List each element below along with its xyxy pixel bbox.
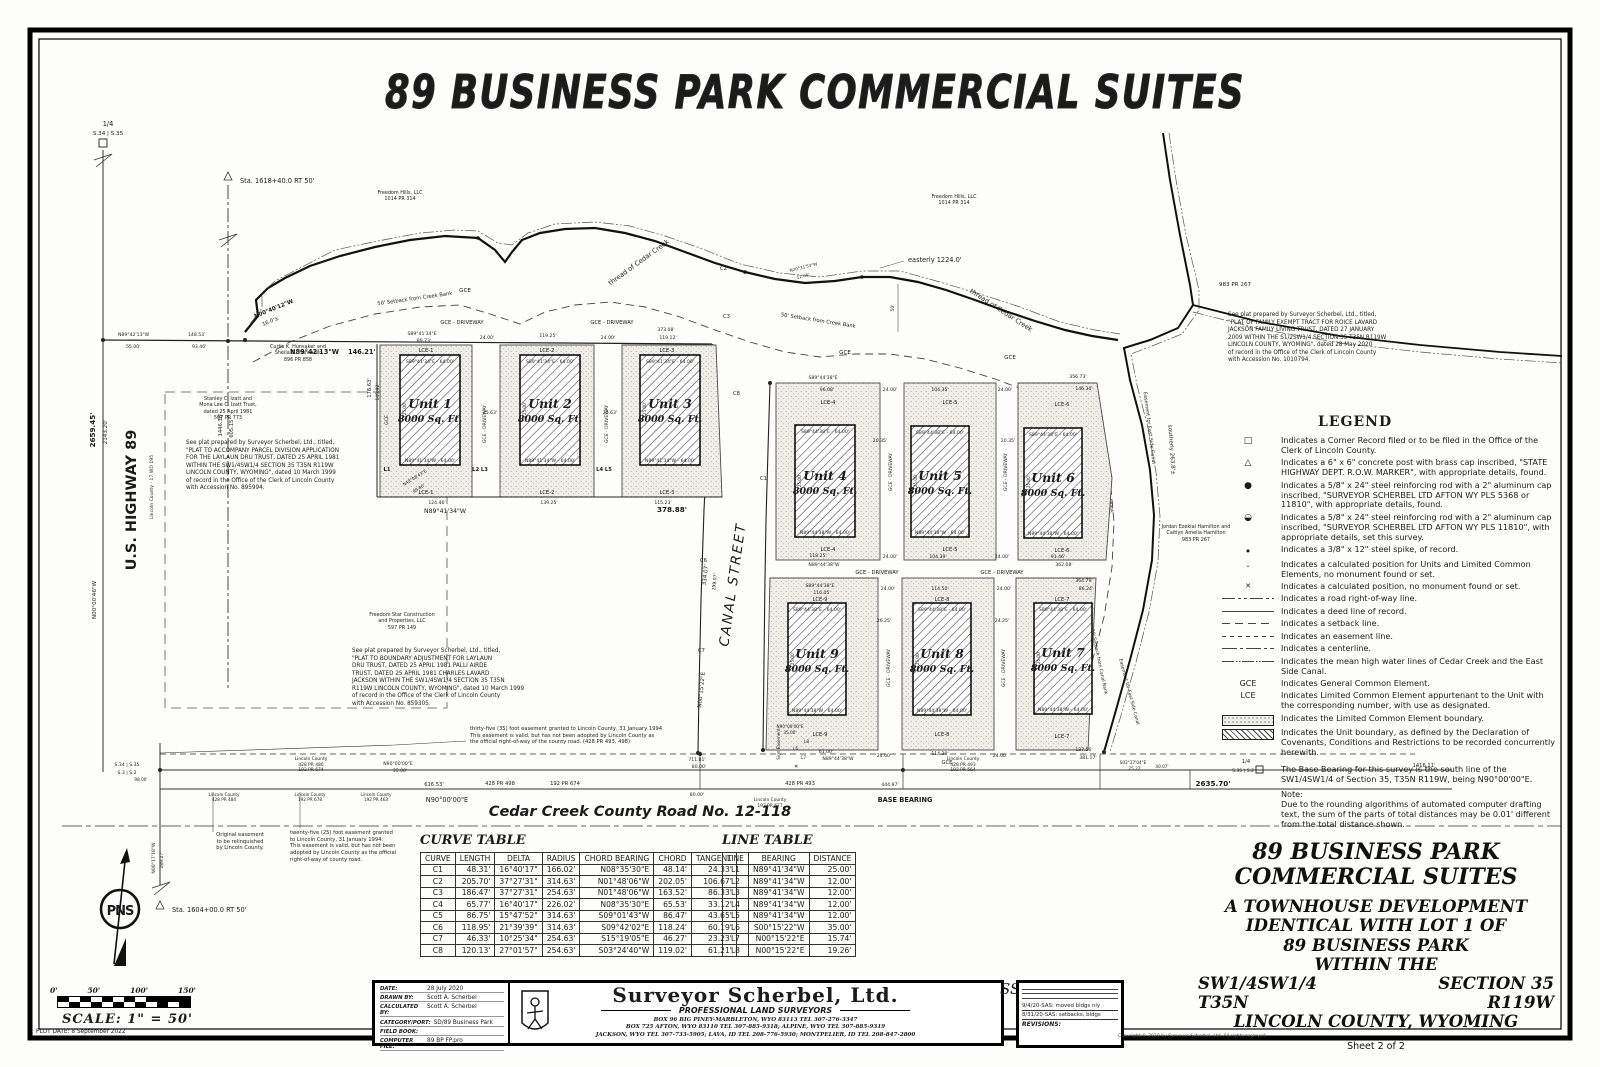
lce-label: LCE-3 — [660, 490, 675, 496]
bearing-label: N90°00'00"E — [777, 724, 804, 729]
legend-item: Indicates a deed line of record. — [1222, 607, 1556, 617]
svg-text:N89°44'38"W - 64.00': N89°44'38"W - 64.00' — [915, 530, 965, 536]
bearing-label: N89°41'34"W — [424, 507, 466, 515]
table-row: L7N00°15'22"E15.74' — [723, 933, 856, 945]
gce-abbrev: GCE — [1222, 679, 1274, 688]
svg-text:Unit 7: Unit 7 — [1041, 645, 1085, 660]
dim-label: 104.35' — [931, 387, 948, 393]
company-name: Surveyor Scherbel, Ltd. — [510, 985, 1001, 1005]
high-water-line-sample — [1222, 661, 1274, 663]
unit-boundary-sample — [1222, 729, 1274, 740]
svg-text:S89°44'38"E - 64.00': S89°44'38"E - 64.00' — [793, 607, 841, 613]
dim-label: 91.46' — [1051, 554, 1065, 560]
bearing-label: S02°27'04"E — [1120, 760, 1147, 765]
legend-item: Indicates a road right-of-way line. — [1222, 594, 1556, 604]
bearing-label: S89°41'34"E — [407, 331, 436, 337]
svg-text:S89°41'34"E - 64.00': S89°41'34"E - 64.00' — [406, 359, 454, 365]
dim-label: 334.07' — [702, 564, 710, 586]
svg-text:125.00': 125.00' — [1036, 651, 1041, 667]
dim-label: 25.22' — [1128, 766, 1141, 771]
dim-label: 299.07' — [711, 573, 719, 591]
sheet-title-block: 89 BUSINESS PARK COMMERCIAL SUITES A TOW… — [1170, 840, 1582, 1052]
line-table-header: LINE BEARING DISTANCE — [723, 853, 856, 865]
svg-text:N89°41'34"W - 64.00': N89°41'34"W - 64.00' — [525, 458, 575, 464]
owner-label: Stanley C. Izatt and Mona Lee C. Izatt T… — [178, 396, 278, 421]
field-value: SD/89 Business Park — [434, 1020, 493, 1026]
legend-item: LCEIndicates Limited Common Element appu… — [1222, 691, 1556, 711]
table-row: L8N00°15'22"E19.26' — [723, 945, 856, 957]
svg-text:125.00': 125.00' — [642, 402, 647, 418]
lce-label: LCE-5 — [943, 400, 958, 406]
legend-item: Indicates the Limited Common Element bou… — [1222, 714, 1556, 726]
dim-label: 35.00' — [783, 730, 796, 735]
dim-label: 16.0'± — [262, 316, 280, 328]
dim-label: 24.00' — [997, 586, 1011, 592]
bearing-label: N90°00'00"E — [426, 796, 468, 804]
legend-item: Indicates the Unit boundary, as defined … — [1222, 728, 1556, 758]
svg-text:8000 Sq. Ft.: 8000 Sq. Ft. — [398, 414, 462, 425]
easement-label: Easement for East Side Canal — [1142, 392, 1157, 465]
field-label: COMPUTER FILE: — [380, 1038, 424, 1050]
dim-label: 93.46' — [192, 344, 206, 350]
title-block-fields: DATE:28 July 2020 DRAWN BY:Scott A. Sche… — [375, 983, 510, 1043]
calc-position-mark: ✕ — [794, 764, 798, 770]
section-label: S.34 | S.35 — [93, 131, 124, 137]
rebar-set-icon: ◒ — [1222, 513, 1274, 523]
legend-title: LEGEND — [1318, 414, 1556, 431]
revisions-panel: 9/4/20-SAS: moved bldgs nly 8/31/20-SAS:… — [1016, 980, 1124, 1048]
legend-item: △Indicates a 6" x 6" concrete post with … — [1222, 458, 1556, 478]
plot-date: PLOT DATE: 8 September 2022 — [36, 1029, 126, 1035]
compass-monogram: PNS — [107, 904, 134, 919]
gce-driveway-label: GCE - DRIVEWAY — [855, 570, 899, 576]
legend: LEGEND □Indicates a Corner Record filed … — [1222, 414, 1556, 830]
curve-table-body: C148.31'16°40'17"166.02'N08°35'30"E48.14… — [421, 864, 737, 956]
table-row: C148.31'16°40'17"166.02'N08°35'30"E48.14… — [421, 864, 737, 876]
gce-label: GCE — [1004, 355, 1016, 361]
curve-label: C7 — [698, 648, 705, 654]
dim-label: 104.39' — [929, 554, 946, 560]
dim-label: 24.00' — [883, 387, 897, 393]
svg-text:N89°44'38"W - 64.00': N89°44'38"W - 64.00' — [792, 708, 842, 714]
svg-text:Unit 1: Unit 1 — [408, 396, 452, 411]
record-label: 428 PR 493 — [785, 781, 815, 787]
revision-entry: 8/31/20-SAS: setbacks, bldgs — [1022, 1011, 1118, 1020]
legend-item: Indicates a centerline. — [1222, 644, 1556, 654]
svg-text:125.00': 125.00' — [1026, 475, 1031, 491]
gce-driveway-label: GCE - DRIVEWAY — [886, 649, 892, 687]
quarter-corner-label: 1/4 — [103, 120, 114, 128]
plat-reference-note: See plat prepared by Surveyor Scherbel, … — [352, 648, 552, 708]
bearing-label: N00°17'18"W — [151, 842, 157, 874]
table-row: L1N89°41'34"W25.00' — [723, 864, 856, 876]
copyright-notice: Copyright © 2020 by Surveyor Scherbel, L… — [1118, 1034, 1267, 1039]
dim-label: 50' — [890, 304, 896, 311]
dim-label: 362.08' — [1055, 562, 1072, 568]
curve-label: C3 — [723, 314, 730, 320]
rounding-note: Due to the rounding algorithms of automa… — [1281, 799, 1556, 829]
svg-text:S89°44'38"E - 64.00': S89°44'38"E - 64.00' — [801, 429, 849, 435]
sheet-title: 89 BUSINESS PARK COMMERCIAL SUITES — [385, 65, 1245, 119]
dim-label: 139.25' — [540, 500, 557, 506]
table-row: C2205.70'37°27'31"314.63'N01°48'06"W202.… — [421, 876, 737, 888]
svg-text:N89°44'38"W - 64.00': N89°44'38"W - 64.00' — [917, 708, 967, 714]
gce-label: GCE — [839, 350, 851, 356]
svg-text:N89°41'34"W - 64.00': N89°41'34"W - 64.00' — [645, 458, 695, 464]
svg-text:S89°41'34"E - 64.00': S89°41'34"E - 64.00' — [646, 359, 694, 365]
station-label: Sta. 1618+40.0 RT 50' — [240, 177, 315, 185]
record-label: 192 PR 674 — [550, 781, 581, 787]
subtitle-line: IDENTICAL WITH LOT 1 OF — [1170, 916, 1582, 935]
lce-label: LCE-6 — [1055, 548, 1070, 554]
svg-text:N89°44'38"W - 64.00': N89°44'38"W - 64.00' — [1028, 531, 1078, 537]
dim-label: 381.17' — [1079, 755, 1096, 761]
row-line-sample — [1222, 598, 1274, 600]
curve-table: CURVE TABLE CURVELENGTH DELTARADIUS CHOR… — [420, 833, 737, 957]
bearing-label: N89°44'38"W — [808, 562, 840, 568]
dim-label: 96.08' — [820, 387, 834, 393]
county-ref-label: Lincoln County - 17 WD 195 — [149, 455, 155, 519]
dim-label: 444.97' — [881, 782, 898, 788]
line-marker: L6 — [793, 746, 798, 751]
owner-label: Lincoln County 192 PR 678 — [282, 792, 338, 803]
svg-text:125.00': 125.00' — [522, 402, 527, 418]
line-marker: L8 — [804, 739, 809, 744]
svg-text:S89°44'38"E - 64.00': S89°44'38"E - 64.00' — [1029, 432, 1077, 438]
scale-label: SCALE: 1" = 50' — [62, 1012, 210, 1027]
dim-label: 24.00' — [881, 586, 895, 592]
line-table: LINE TABLE LINE BEARING DISTANCE L1N89°4… — [722, 833, 856, 957]
surveyor-logo-icon — [518, 989, 552, 1035]
line-table-title: LINE TABLE — [722, 833, 856, 848]
dim-label: 148.53' — [188, 332, 205, 338]
dim-label: 86.24' — [1079, 586, 1093, 592]
ss-monogram: SS — [1000, 984, 1014, 995]
setback-line-sample — [1222, 623, 1274, 625]
svg-text:Unit 4: Unit 4 — [803, 468, 847, 483]
gce-driveway-label: GCE - DRIVEWAY — [1001, 649, 1007, 687]
station-label: Sta. 1604+00.0 RT 50' — [172, 906, 247, 914]
company-address: BOX 96 BIG PINEY-MARBLETON, WYO 83113 TE… — [510, 1017, 1001, 1024]
field-label: CATEGORY/PORT: — [380, 1020, 431, 1026]
field-value: 28 July 2020 — [427, 986, 463, 992]
svg-text:125.00': 125.00' — [913, 474, 918, 490]
dim-label: 24.00' — [601, 335, 615, 341]
owner-label: Lincoln County 192 PR 677 — [740, 798, 800, 809]
base-bearing-note: The Base Bearing for this survey is the … — [1281, 764, 1556, 784]
gce-driveway-label: GCE - DRIVEWAY — [590, 320, 634, 326]
legend-item: Indicates the mean high water lines of C… — [1222, 657, 1556, 677]
svg-text:Unit 5: Unit 5 — [918, 468, 962, 483]
bearing-label: N00°00'46"W — [92, 581, 98, 619]
table-row: C6118.95'21°39'39"314.63'S09°42'02"E118.… — [421, 922, 737, 934]
dim-label: 2143.20' — [103, 420, 109, 445]
dim-label: 80.00' — [690, 792, 704, 798]
record-label: 983 PR 267 — [1219, 282, 1252, 288]
easement-line-sample — [1222, 636, 1274, 638]
svg-text:8000 Sq. Ft.: 8000 Sq. Ft. — [793, 486, 857, 497]
deed-line-sample — [1222, 611, 1274, 613]
owner-label: Curtis K. Hunsaker and Sheila D. Hunsake… — [252, 344, 344, 363]
legal-description-row: SW1/4SW1/4SECTION 35 — [1170, 974, 1582, 993]
field-label: DATE: — [380, 986, 424, 992]
lce-label: LCE-5 — [943, 547, 958, 553]
company-address: BOX 725 AFTON, WYO 83110 TEL 307-885-931… — [510, 1024, 1001, 1031]
table-row: C586.75'15°47'52"314.63'S09°01'43"W86.47… — [421, 910, 737, 922]
owner-label: Lincoln County 428 PR 486 192 PR 674 — [278, 757, 344, 774]
revision-entry: 9/4/20-SAS: moved bldgs nly — [1022, 1002, 1118, 1011]
field-label: CALCULATED BY: — [380, 1004, 424, 1016]
dim-label: 178.63' — [367, 378, 373, 398]
bearing-label: S89°44'38"E — [805, 583, 834, 589]
owner-label: Lincoln County 428 PR 484 — [196, 792, 252, 803]
dim-label: 25.63' — [483, 410, 497, 416]
dim-label: 89.73' — [417, 338, 431, 344]
lce-label: LCE-3 — [660, 348, 675, 354]
street-label: CANAL STREET — [716, 521, 749, 647]
dim-label: 25.63' — [603, 410, 617, 416]
lce-label: LCE-4 — [821, 547, 837, 553]
field-value: Scott A. Scherbel — [427, 1004, 477, 1016]
svg-text:8000 Sq. Ft.: 8000 Sq. Ft. — [638, 414, 702, 425]
owner-label: Freedom Hills, LLC 1014 PR 314 — [912, 194, 996, 207]
lce-label: LCE-1 — [419, 348, 434, 354]
dim-label: 356.73' — [1069, 374, 1086, 380]
curve-label: C2 — [720, 266, 727, 272]
highway-label: U.S. HIGHWAY 89 — [124, 430, 140, 571]
field-value: 89 BP FP.pro — [427, 1038, 463, 1050]
dim-label: 373.08' — [657, 327, 674, 333]
dim-label: 98.00' — [134, 777, 147, 782]
rebar-found-icon: ● — [1222, 481, 1274, 491]
company-address: JACKSON, WYO TEL 307-733-5905; LAVA, ID … — [510, 1032, 1001, 1039]
bearing-label: S89°44'38"E — [808, 375, 837, 381]
svg-text:S89°41'34"E - 64.00': S89°41'34"E - 64.00' — [526, 359, 574, 365]
easement-note: Original easement to be relinquished by … — [200, 832, 280, 852]
note-title: Note: — [1281, 789, 1556, 799]
subtitle-line: A TOWNHOUSE DEVELOPMENT — [1170, 897, 1582, 916]
svg-text:Unit 8: Unit 8 — [920, 646, 964, 661]
calculated-x-icon: ✕ — [1222, 582, 1274, 590]
lce-label: LCE-2 — [540, 348, 555, 354]
owner-label: Lincoln County 428 PR 493 192 PR 564 — [930, 757, 996, 774]
dim-label: 605.15' — [229, 418, 235, 438]
svg-text:Unit 9: Unit 9 — [795, 646, 839, 661]
dim-label: 146.30' — [1075, 386, 1092, 392]
dim-label: 119.12' — [659, 335, 676, 341]
svg-text:N89°41'34"W - 64.00': N89°41'34"W - 64.00' — [405, 458, 455, 464]
svg-text:Unit 3: Unit 3 — [648, 396, 692, 411]
table-row: L4N89°41'34"W12.00' — [723, 899, 856, 911]
dim-label: 711.81' — [688, 757, 705, 763]
company-subtitle: PROFESSIONAL LAND SURVEYORS — [510, 1006, 1001, 1015]
svg-text:Unit 6: Unit 6 — [1031, 470, 1075, 485]
creek-label: thread of Cedar Creek — [968, 287, 1034, 334]
bearing-label: N90°00'00"E — [383, 761, 413, 767]
dim-label: 26.25' — [877, 618, 891, 624]
dim-label: 55.00' — [126, 344, 140, 350]
bearing-label: N20°31'53"W — [789, 261, 818, 273]
gce-driveway-label: GCE - DRIVEWAY — [980, 570, 1024, 576]
bearing-label: N00°15'22"E — [697, 671, 707, 708]
gce-driveway-label: GCE - DRIVEWAY — [888, 453, 894, 491]
table-row: L5N89°41'34"W12.00' — [723, 910, 856, 922]
lce-label: LCE-6 — [1055, 402, 1070, 408]
dim-label: 12.65' — [796, 272, 810, 280]
legend-item: □Indicates a Corner Record filed or to b… — [1222, 436, 1556, 456]
dim-label: 2659.45' — [88, 413, 97, 448]
svg-text:125.00': 125.00' — [790, 652, 795, 668]
owner-label: Freedom Star Construction and Properties… — [352, 612, 452, 631]
legal-description-row: T35NR119W — [1170, 993, 1582, 1012]
dim-label: 116.05' — [813, 590, 830, 596]
record-label: 428 PR 498 — [485, 781, 515, 787]
legend-item: ●Indicates a 5/8" x 24" steel reinforcin… — [1222, 481, 1556, 511]
bearing-label: N89°42'13"W — [118, 332, 150, 338]
lce-label: LCE-9 — [813, 597, 828, 603]
owner-label: Lincoln County 192 PR 463 — [348, 792, 404, 803]
curve-table-title: CURVE TABLE — [420, 833, 737, 848]
concrete-post-icon: △ — [1222, 458, 1274, 468]
dim-label: 118.25' — [809, 553, 826, 559]
title-block: DATE:28 July 2020 DRAWN BY:Scott A. Sche… — [372, 980, 1004, 1046]
easement-label: Sign Easement — [776, 728, 781, 760]
table-row: L6S00°15'22"W35.00' — [723, 922, 856, 934]
svg-text:N89°44'38"W - 64.00': N89°44'38"W - 64.00' — [800, 530, 850, 536]
table-row: C3186.47'37°27'31"254.63'N01°48'06"W163.… — [421, 887, 737, 899]
plat-reference-note: See plat prepared by Surveyor Scherbel, … — [186, 440, 372, 493]
curve-label: C1 — [760, 476, 767, 482]
lce-label: LCE-7 — [1055, 597, 1070, 603]
scale-bar-graphic — [57, 996, 191, 1008]
table-row: C746.33'10°25'34"254.63'S15°19'05"E46.27… — [421, 933, 737, 945]
field-label: DRAWN BY: — [380, 995, 424, 1001]
curve-table-header: CURVELENGTH DELTARADIUS CHORD BEARINGCHO… — [421, 853, 737, 865]
line-table-body: L1N89°41'34"W25.00'L2N89°41'34"W12.00'L3… — [723, 864, 856, 956]
svg-text:Unit 2: Unit 2 — [528, 396, 572, 411]
base-bearing-label: BASE BEARING — [878, 796, 933, 804]
legend-item: ·Indicates a calculated position for Uni… — [1222, 560, 1556, 580]
lce-abbrev: LCE — [1222, 691, 1274, 700]
section-label: S.34 | S.35 — [115, 762, 140, 768]
lce-label: LCE-8 — [935, 597, 950, 603]
steel-spike-icon: • — [1222, 545, 1274, 557]
dim-label: southerly 263.8'± — [1166, 425, 1176, 476]
dim-label: 24.25' — [995, 618, 1009, 624]
dim-label: 378.88' — [657, 505, 687, 514]
setback-label: 50' Setback from Creek Bank — [377, 291, 453, 307]
dim-label: 24.00' — [883, 554, 897, 560]
legend-item: Indicates an easement line. — [1222, 632, 1556, 642]
dim-label: 364.79' — [1075, 578, 1092, 584]
project-title-line: COMMERCIAL SUITES — [1170, 865, 1582, 890]
lce-label: LCE-4 — [821, 400, 837, 406]
dim-label: 20.35' — [873, 438, 887, 444]
creek-label: thread of Cedar Creek — [607, 238, 671, 287]
line-marker: L4 L5 — [596, 467, 612, 473]
gce-driveway-label: GCE - DRIVEWAY — [440, 320, 484, 326]
dim-label: 20.35' — [1001, 438, 1015, 444]
sheet-number: Sheet 2 of 2 — [1170, 1041, 1582, 1052]
line-marker: L7 — [801, 755, 806, 760]
gce-label: GCE — [384, 415, 390, 425]
lce-label: LCE-9 — [813, 732, 828, 738]
dim-label: 24.00' — [998, 387, 1012, 393]
table-row: C465.77'16°40'17"226.02'N08°35'30"E65.53… — [421, 899, 737, 911]
dim-label: 124.46' — [428, 500, 445, 506]
lce-label: LCE-8 — [935, 732, 950, 738]
svg-text:S89°44'38"E - 64.00': S89°44'38"E - 64.00' — [1039, 607, 1087, 613]
centerline-sample — [1222, 648, 1274, 650]
surveyor-company-panel: Surveyor Scherbel, Ltd. PROFESSIONAL LAN… — [510, 983, 1001, 1043]
calculated-position-icon: · — [1222, 560, 1274, 572]
corner-record-icon: □ — [1222, 436, 1274, 446]
svg-text:N89°44'38"W - 64.00': N89°44'38"W - 64.00' — [1038, 707, 1088, 713]
dim-label: 119.25' — [539, 333, 556, 339]
table-row: C8120.13'27°01'57"254.63'S03°24'40"W119.… — [421, 945, 737, 957]
legend-item: ✕Indicates a calculated position, no mon… — [1222, 582, 1556, 592]
dim-label: 289.27' — [159, 851, 165, 868]
svg-text:S89°44'38"E - 64.00': S89°44'38"E - 64.00' — [916, 430, 964, 436]
field-label: FIELD BOOK: — [380, 1029, 424, 1035]
north-boundary — [102, 339, 713, 345]
legend-item: GCEIndicates General Common Element. — [1222, 679, 1556, 689]
table-row: L2N89°41'34"W12.00' — [723, 876, 856, 888]
bearing-label: N89°44'38"W — [822, 756, 854, 762]
legend-item: Indicates a setback line. — [1222, 619, 1556, 629]
dim-label: easterly 1224.0' — [908, 256, 962, 264]
county-line: LINCOLN COUNTY, WYOMING — [1170, 1012, 1582, 1031]
gce-label: GCE — [459, 288, 471, 294]
curve-label: C8 — [733, 391, 740, 397]
plat-reference-note: See plat prepared by Surveyor Scherbel, … — [1228, 312, 1428, 365]
dim-label: 616.53' — [424, 782, 444, 788]
dim-label: 80.00' — [692, 764, 706, 770]
plat-sheet: 89 BUSINESS PARK COMMERCIAL SUITES 1/4 S… — [0, 0, 1600, 1067]
dim-label: 24.00' — [480, 335, 494, 341]
dim-label: 40.07' — [1155, 764, 1168, 769]
lce-boundary-sample — [1222, 715, 1274, 726]
lce-label: LCE-1 — [419, 490, 434, 496]
curve-label: C6 — [700, 558, 707, 564]
table-row: L3N89°41'34"W12.00' — [723, 887, 856, 899]
section-label: S.3 | S.2 — [117, 770, 136, 776]
gce-driveway-label: GCE - DRIVEWAY — [1003, 453, 1009, 491]
owner-label: Freedom Hills, LLC 1014 PR 314 — [358, 190, 442, 203]
svg-text:S89°44'38"E - 64.00': S89°44'38"E - 64.00' — [918, 607, 966, 613]
dim-label: 146.21' — [348, 348, 375, 356]
line-marker: L1 — [384, 467, 391, 473]
dim-label: 35.00' — [393, 768, 407, 774]
field-value: Scott A. Scherbel — [427, 995, 477, 1001]
scale-ticks: 0' 50' 100' 150' — [50, 986, 196, 995]
subtitle-line: WITHIN THE — [1170, 955, 1582, 974]
scale-bar: 0' 50' 100' 150' SCALE: 1" = 50' — [50, 986, 210, 1027]
easement-note: twenty-five (25) foot easement granted t… — [290, 830, 430, 863]
dim-label: 24.00' — [995, 554, 1009, 560]
line-marker: L2 L3 — [472, 467, 488, 473]
easement-note: thirty-five (35) foot easement granted t… — [470, 726, 710, 746]
svg-text:125.00': 125.00' — [402, 402, 407, 418]
dim-label: 145.92' — [375, 383, 381, 400]
legend-item: •Indicates a 3/8" x 12" steel spike, of … — [1222, 545, 1556, 557]
lce-label: LCE-7 — [1055, 734, 1070, 740]
project-title-line: 89 BUSINESS PARK — [1170, 840, 1582, 865]
svg-text:8000 Sq. Ft.: 8000 Sq. Ft. — [518, 414, 582, 425]
revisions-label: REVISIONS: — [1022, 1021, 1118, 1028]
dim-label: 114.50' — [931, 586, 948, 592]
subtitle-line: 89 BUSINESS PARK — [1170, 936, 1582, 955]
